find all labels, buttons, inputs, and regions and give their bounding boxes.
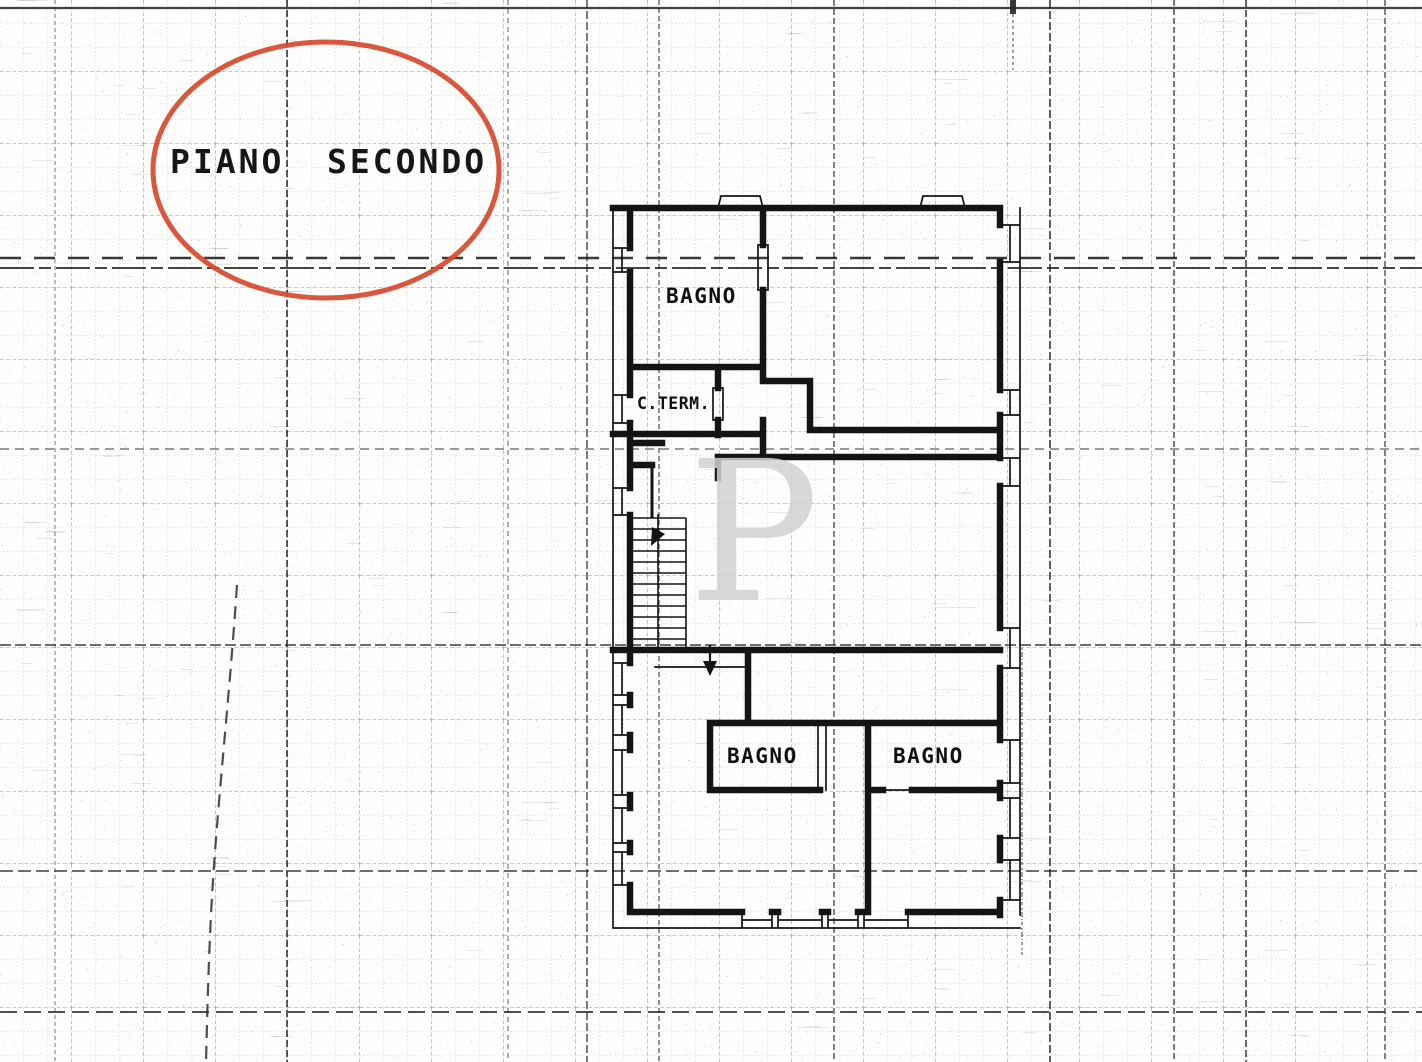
room-label-bagno-left: BAGNO [727, 744, 798, 768]
floor-plan-drawing: BAGNO C.TERM. BAGNO BAGNO P PIANO SECOND… [0, 0, 1422, 1062]
floor-title-word1: PIANO [170, 142, 284, 181]
scanned-floor-plan-page: BAGNO C.TERM. BAGNO BAGNO P PIANO SECOND… [0, 0, 1422, 1062]
room-label-bagno-top: BAGNO [666, 284, 737, 308]
room-label-bagno-right: BAGNO [893, 744, 964, 768]
watermark-letter: P [688, 419, 819, 646]
room-label-c-term: C.TERM. [637, 394, 710, 413]
floor-title-word2: SECONDO [327, 142, 487, 181]
